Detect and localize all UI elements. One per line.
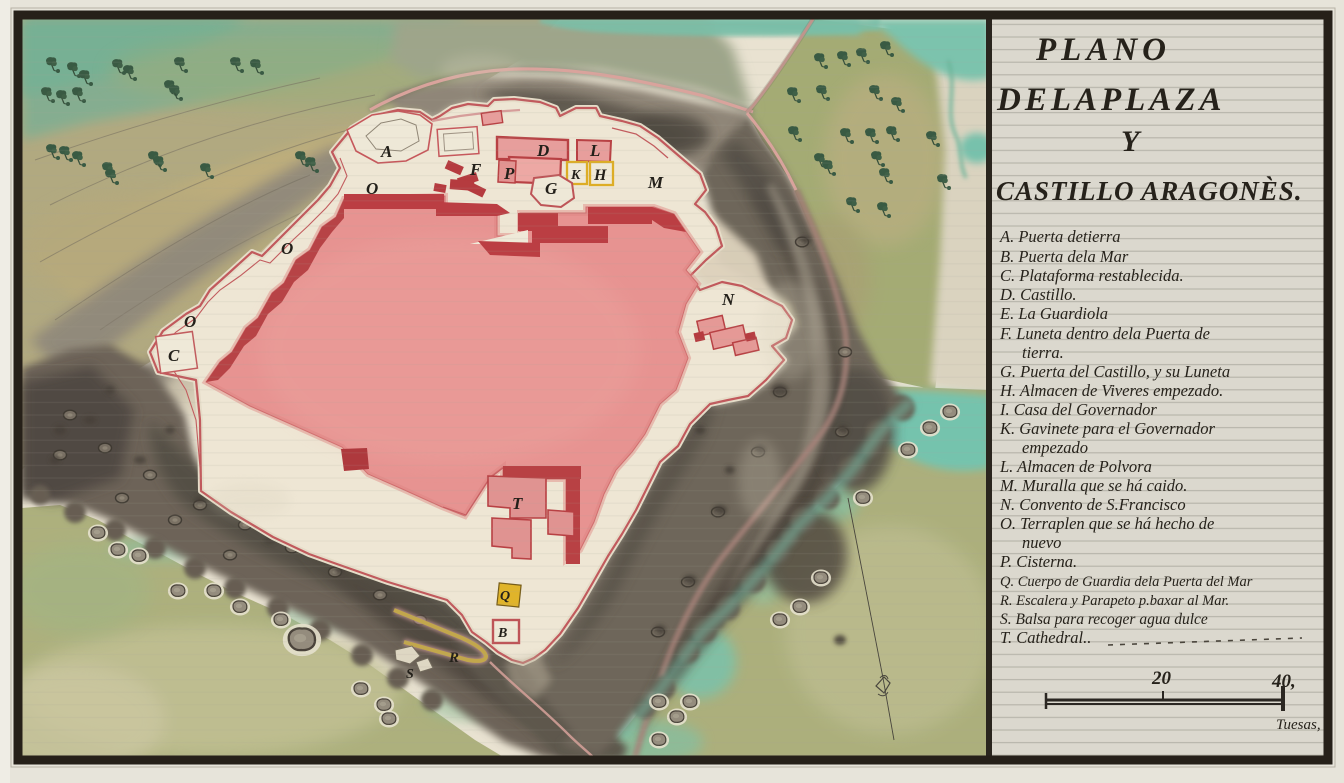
svg-text:F. Luneta dentro dela Puerta d: F. Luneta dentro dela Puerta de (999, 324, 1210, 343)
svg-text:F: F (469, 160, 482, 179)
svg-text:A: A (380, 142, 392, 161)
svg-text:O. Terraplen que se há hecho d: O. Terraplen que se há hecho de (1000, 514, 1214, 533)
svg-text:Q. Cuerpo de Guardia dela Puer: Q. Cuerpo de Guardia dela Puerta del Mar (1000, 574, 1253, 590)
svg-text:P. Cisterna.: P. Cisterna. (999, 552, 1077, 571)
svg-text:O: O (184, 312, 196, 331)
svg-text:T: T (512, 494, 523, 513)
svg-text:PLANO: PLANO (1035, 32, 1171, 68)
svg-text:R. Escalera y Parapeto p.baxar: R. Escalera y Parapeto p.baxar al Mar. (999, 593, 1229, 609)
svg-text:M. Muralla que se há caido.: M. Muralla que se há caido. (999, 476, 1187, 495)
svg-text:C. Plataforma restablecida.: C. Plataforma restablecida. (1000, 266, 1184, 285)
svg-text:H: H (593, 167, 607, 184)
svg-text:N: N (721, 290, 735, 309)
svg-text:P: P (503, 164, 515, 183)
svg-text:Y: Y (1121, 125, 1142, 158)
svg-text:DELAPLAZA: DELAPLAZA (996, 82, 1226, 118)
svg-text:S. Balsa para recoger agua dul: S. Balsa para recoger agua dulce (1000, 611, 1208, 628)
svg-text:nuevo: nuevo (1022, 533, 1061, 552)
svg-text:tierra.: tierra. (1022, 343, 1064, 362)
svg-text:G: G (545, 179, 558, 198)
svg-text:Q: Q (500, 589, 510, 604)
svg-text:O: O (366, 179, 378, 198)
svg-text:T. Cathedral..: T. Cathedral.. (1000, 628, 1091, 647)
svg-text:N. Convento de S.Francisco: N. Convento de S.Francisco (999, 495, 1186, 514)
svg-text:E. La Guardiola: E. La Guardiola (999, 304, 1108, 323)
svg-text:20: 20 (1151, 668, 1172, 689)
svg-text:O: O (281, 239, 293, 258)
svg-text:K: K (570, 168, 582, 183)
svg-text:B: B (497, 626, 507, 641)
svg-text:M: M (647, 173, 664, 192)
svg-text:empezado: empezado (1022, 438, 1088, 457)
svg-text:D: D (536, 141, 549, 160)
svg-text:B. Puerta dela Mar: B. Puerta dela Mar (1000, 247, 1129, 266)
svg-text:Tuesas,: Tuesas, (1276, 717, 1321, 733)
svg-text:R: R (448, 650, 459, 666)
svg-text:S: S (406, 667, 414, 682)
svg-text:A. Puerta detierra: A. Puerta detierra (999, 227, 1121, 246)
svg-text:C: C (168, 346, 180, 365)
svg-text:CASTILLO ARAGONÈS.: CASTILLO ARAGONÈS. (996, 176, 1303, 206)
svg-text:G. Puerta del Castillo, y su L: G. Puerta del Castillo, y su Luneta (1000, 362, 1230, 381)
svg-text:I. Casa del Governador: I. Casa del Governador (999, 400, 1157, 419)
svg-text:D. Castillo.: D. Castillo. (999, 285, 1077, 304)
svg-text:L: L (589, 141, 600, 160)
svg-text:K. Gavinete para el Governador: K. Gavinete para el Governador (999, 419, 1215, 438)
svg-text:H. Almacen de Viveres empezado: H. Almacen de Viveres empezado. (999, 381, 1223, 400)
svg-text:L. Almacen de Polvora: L. Almacen de Polvora (999, 457, 1152, 476)
